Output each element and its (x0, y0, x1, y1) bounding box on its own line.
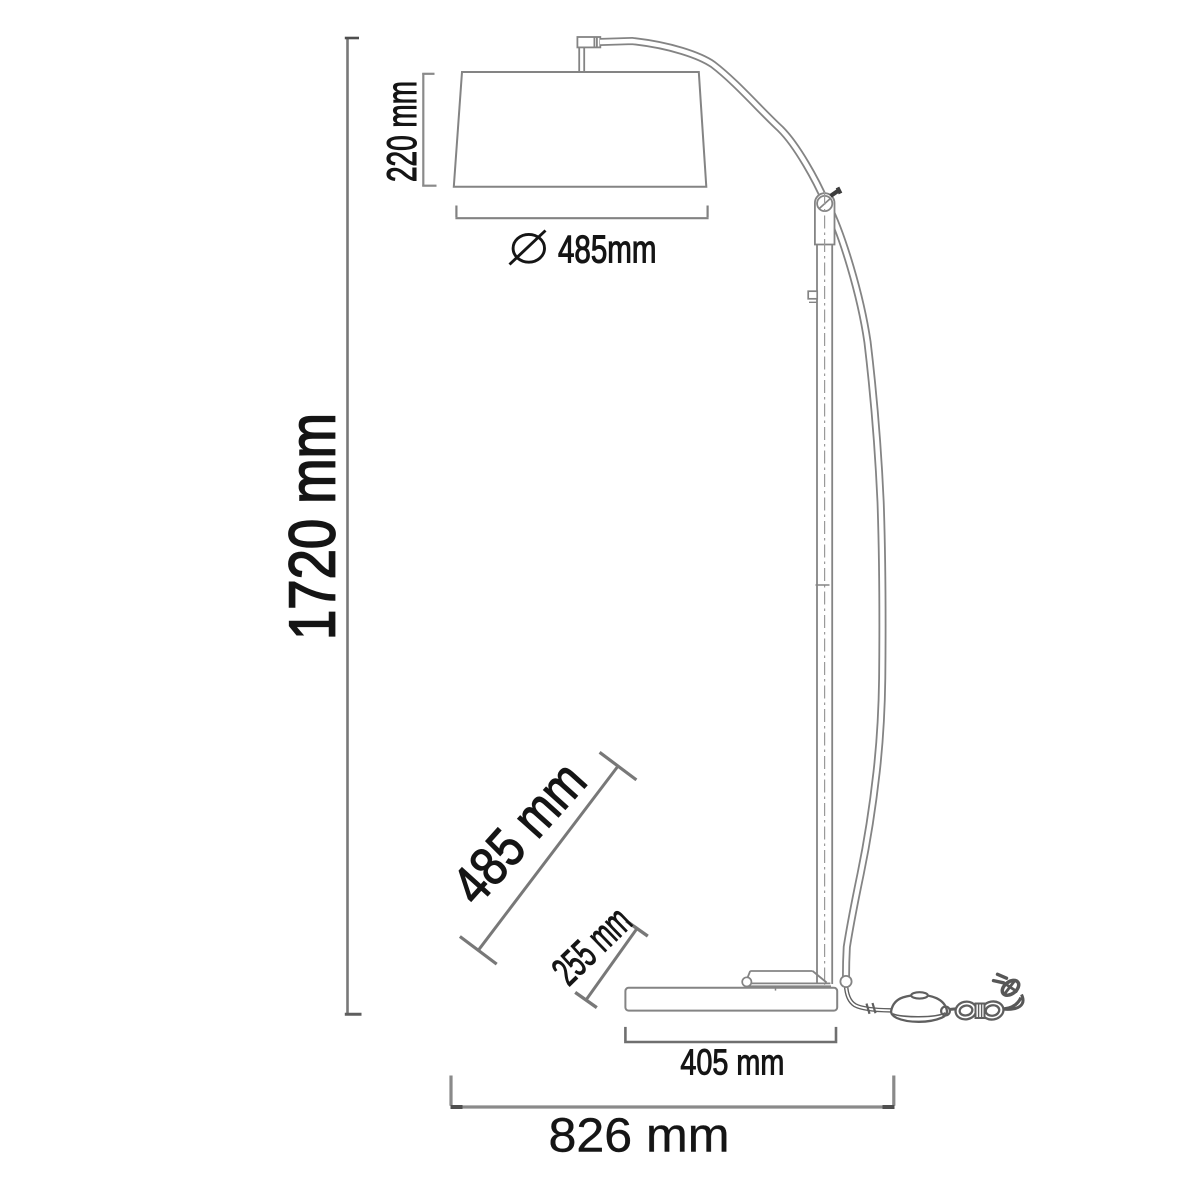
svg-text:1720 mm: 1720 mm (277, 413, 349, 640)
svg-text:826 mm: 826 mm (549, 1110, 730, 1163)
svg-text:405 mm: 405 mm (680, 1042, 784, 1083)
svg-text:220 mm: 220 mm (378, 81, 425, 182)
svg-text:485mm: 485mm (558, 228, 657, 271)
